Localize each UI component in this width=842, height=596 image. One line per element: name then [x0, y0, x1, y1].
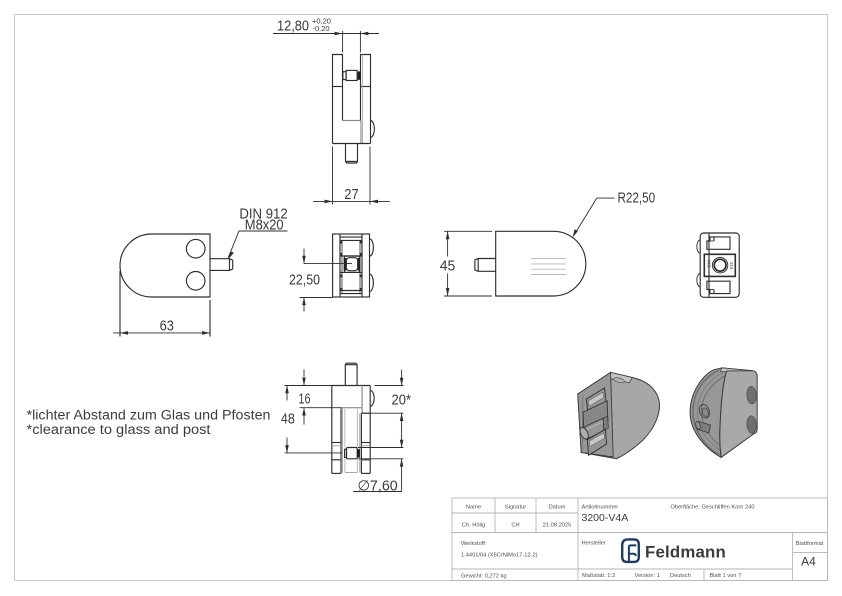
- svg-text:Blatt 1 von 7: Blatt 1 von 7: [710, 573, 742, 579]
- svg-text:R22,50: R22,50: [618, 191, 656, 207]
- svg-text:A4: A4: [801, 555, 816, 569]
- svg-text:12,80: 12,80: [277, 19, 309, 35]
- svg-text:Version: 1: Version: 1: [635, 573, 660, 579]
- svg-text:Gewicht: 0,272 kg: Gewicht: 0,272 kg: [461, 574, 507, 580]
- svg-text:Oberfläche: Geschliffen Korn: Oberfläche: Geschliffen Korn 240: [671, 505, 755, 511]
- svg-text:20*: 20*: [392, 392, 412, 408]
- svg-text:16: 16: [299, 391, 311, 407]
- svg-text:*lichter Abstand zum Glas und: *lichter Abstand zum Glas und Pfosten: [27, 407, 271, 422]
- svg-text:DIN: DIN: [707, 260, 712, 268]
- svg-text:48: 48: [281, 412, 295, 428]
- svg-text:Artikelnummer: Artikelnummer: [582, 505, 619, 511]
- svg-text:Blattformat: Blattformat: [796, 541, 824, 547]
- svg-text:Feldmann: Feldmann: [645, 544, 726, 562]
- svg-text:Datum: Datum: [549, 505, 566, 511]
- svg-text:Signatur: Signatur: [505, 505, 526, 511]
- svg-text:63: 63: [160, 318, 174, 334]
- svg-text:Deutsch: Deutsch: [670, 573, 691, 579]
- svg-text:Werkstoff:: Werkstoff:: [461, 541, 487, 547]
- svg-text:1.4401/04 (X5CrNiMo17-12-2): 1.4401/04 (X5CrNiMo17-12-2): [461, 553, 538, 559]
- svg-text:-0.20: -0.20: [313, 24, 330, 33]
- svg-text:Maßstab: 1:2: Maßstab: 1:2: [582, 573, 615, 579]
- svg-text:27: 27: [344, 187, 358, 203]
- svg-text:45: 45: [440, 258, 456, 274]
- svg-text:3200-V4A: 3200-V4A: [582, 512, 629, 524]
- svg-text:Ch. Hölig: Ch. Hölig: [462, 523, 485, 529]
- svg-text:Name: Name: [466, 505, 481, 511]
- svg-text:*clearance to glass and post: *clearance to glass and post: [27, 422, 211, 437]
- svg-text:21.08.2025: 21.08.2025: [543, 523, 571, 529]
- svg-text:CH: CH: [511, 523, 519, 529]
- svg-text:Hersteller: Hersteller: [582, 541, 606, 547]
- svg-text:22,50: 22,50: [289, 272, 320, 288]
- svg-text:316: 316: [729, 262, 734, 270]
